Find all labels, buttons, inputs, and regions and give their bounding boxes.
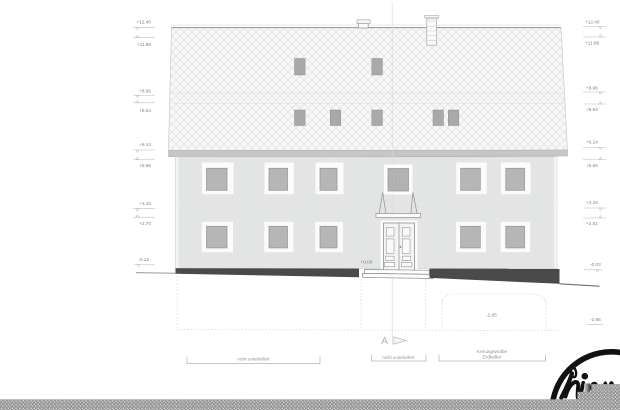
svg-text:-0.12: -0.12	[138, 257, 149, 262]
svg-text:+8.54: +8.54	[139, 108, 151, 113]
svg-text:+3.10: +3.10	[586, 200, 598, 205]
svg-text:+8.54: +8.54	[586, 107, 598, 112]
svg-text:nicht unterkellert: nicht unterkellert	[382, 355, 415, 360]
svg-text:+6.14: +6.14	[139, 142, 151, 147]
svg-text:Erdkeller: Erdkeller	[483, 354, 502, 360]
svg-text:-2,95: -2,95	[486, 313, 497, 318]
svg-text:+11.88: +11.88	[137, 42, 152, 47]
svg-text:+2.51: +2.51	[586, 221, 598, 226]
svg-text:+5.66: +5.66	[586, 163, 598, 168]
svg-text:+5.66: +5.66	[139, 163, 151, 168]
svg-text:+12.40: +12.40	[585, 19, 600, 24]
svg-text:+3.10: +3.10	[139, 201, 151, 206]
svg-text:+8.96: +8.96	[139, 88, 151, 93]
svg-text:A: A	[381, 336, 388, 347]
svg-text:+8.96: +8.96	[586, 85, 598, 90]
svg-text:+6.14: +6.14	[586, 140, 598, 145]
svg-text:+12.40: +12.40	[137, 20, 152, 25]
svg-text:-2,95: -2,95	[590, 317, 601, 322]
svg-text:Kreuzgewölbe: Kreuzgewölbe	[477, 349, 508, 355]
svg-text:+11.88: +11.88	[585, 40, 600, 45]
svg-text:-0.03: -0.03	[590, 262, 601, 267]
svg-text:+2.70: +2.70	[139, 221, 151, 226]
svg-text:nicht unterkellert: nicht unterkellert	[237, 357, 270, 362]
svg-text:+0.00: +0.00	[361, 259, 373, 264]
